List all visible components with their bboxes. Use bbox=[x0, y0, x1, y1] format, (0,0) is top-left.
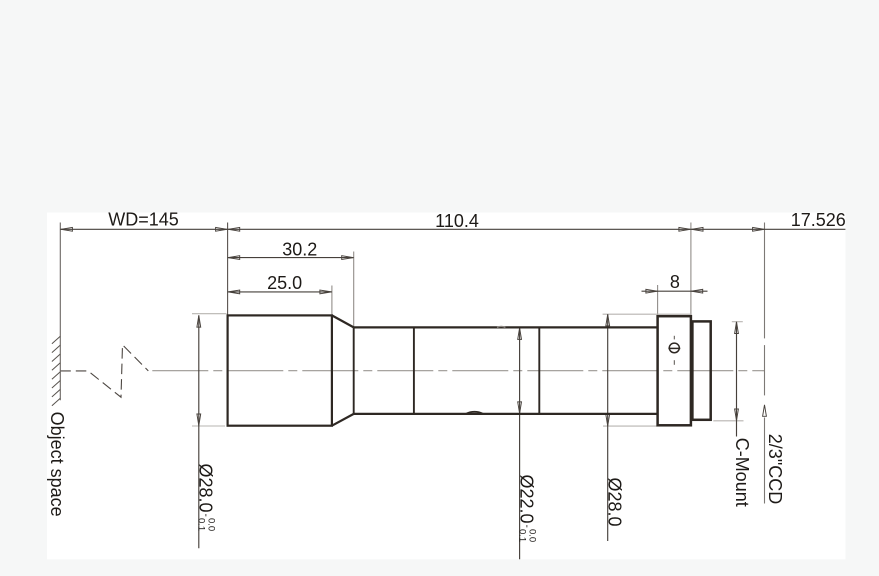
svg-text:Ø22.0: Ø22.0 bbox=[516, 475, 536, 524]
svg-text:C-Mount: C-Mount bbox=[732, 438, 752, 507]
svg-text:25.0: 25.0 bbox=[267, 273, 302, 293]
svg-text:30.2: 30.2 bbox=[282, 239, 317, 259]
svg-text:8: 8 bbox=[670, 272, 680, 292]
svg-text:0.1: 0.1 bbox=[196, 518, 207, 531]
svg-text:WD=145: WD=145 bbox=[108, 210, 179, 230]
svg-text:Object space: Object space bbox=[47, 412, 67, 517]
svg-text:17.526: 17.526 bbox=[791, 210, 846, 230]
svg-text:-: - bbox=[521, 525, 532, 528]
svg-text:2/3"CCD: 2/3"CCD bbox=[765, 434, 785, 504]
svg-text:-: - bbox=[200, 514, 211, 517]
svg-text:110.4: 110.4 bbox=[435, 211, 479, 231]
svg-text:Ø28.0: Ø28.0 bbox=[604, 478, 624, 527]
svg-text:Ø28.0: Ø28.0 bbox=[196, 464, 216, 513]
svg-text:0.1: 0.1 bbox=[516, 529, 527, 542]
